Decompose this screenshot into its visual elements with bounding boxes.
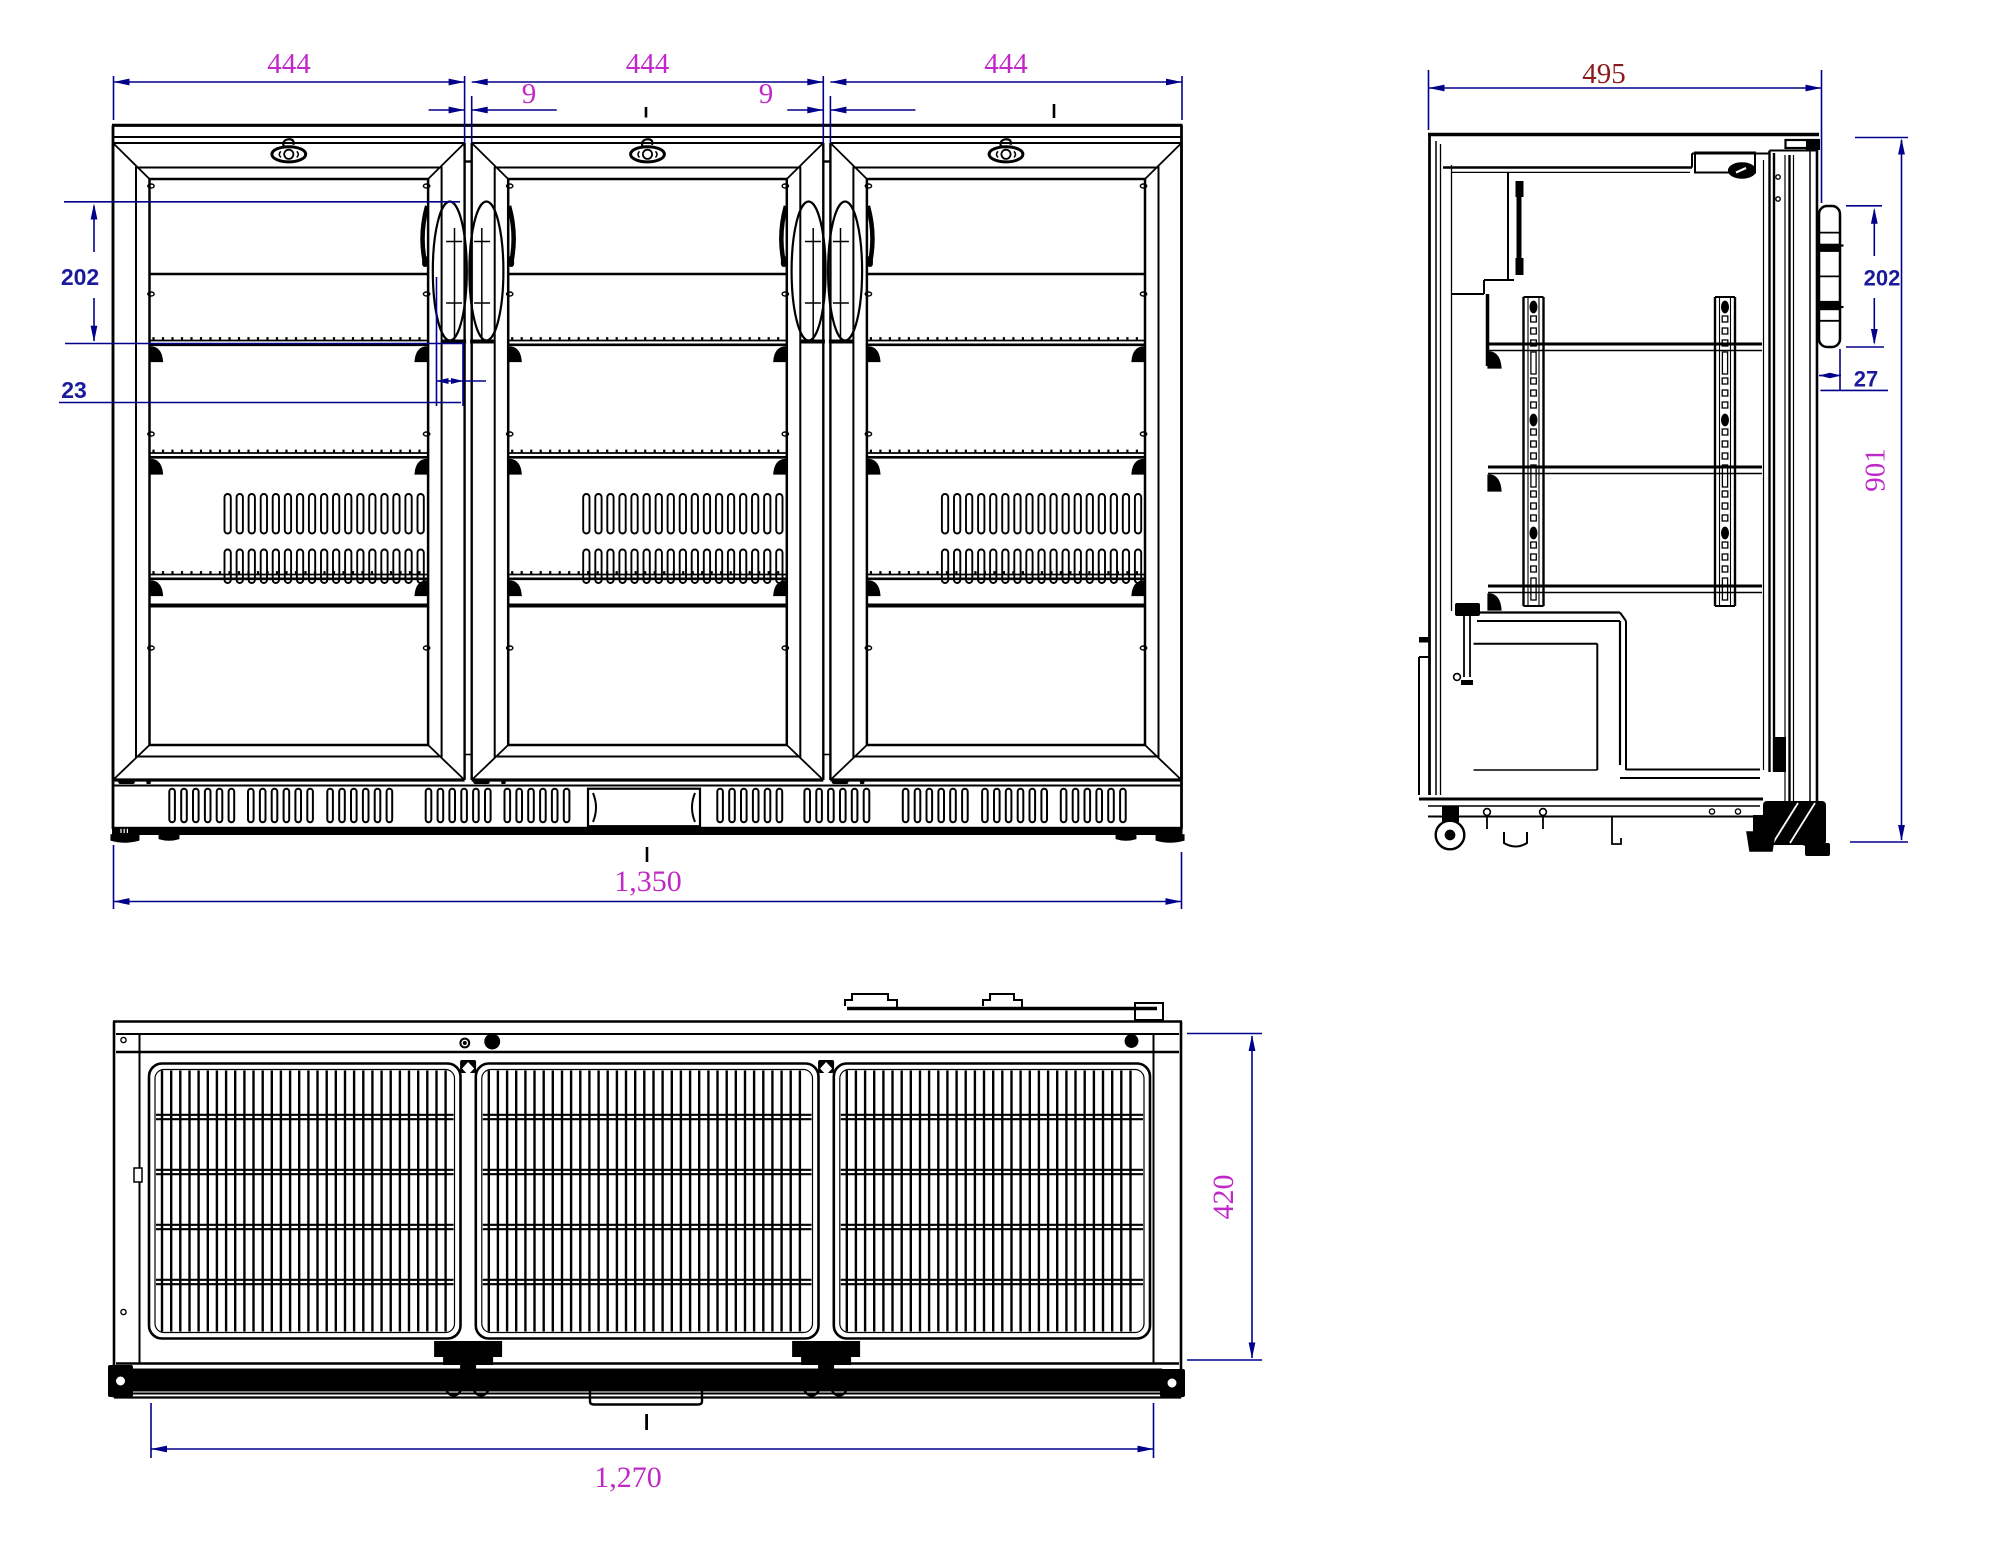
svg-text:444: 444 bbox=[626, 48, 670, 80]
svg-text:27: 27 bbox=[1854, 367, 1878, 392]
svg-text:495: 495 bbox=[1582, 58, 1626, 90]
svg-text:420: 420 bbox=[1207, 1175, 1240, 1220]
svg-text:23: 23 bbox=[61, 377, 87, 403]
svg-text:9: 9 bbox=[759, 78, 774, 110]
svg-text:1,270: 1,270 bbox=[594, 1461, 662, 1494]
svg-text:202: 202 bbox=[1864, 266, 1901, 291]
svg-text:444: 444 bbox=[984, 48, 1028, 80]
svg-text:444: 444 bbox=[267, 48, 311, 80]
svg-text:1,350: 1,350 bbox=[614, 865, 682, 898]
svg-text:202: 202 bbox=[61, 264, 99, 290]
svg-text:901: 901 bbox=[1860, 448, 1892, 492]
svg-text:9: 9 bbox=[522, 78, 537, 110]
